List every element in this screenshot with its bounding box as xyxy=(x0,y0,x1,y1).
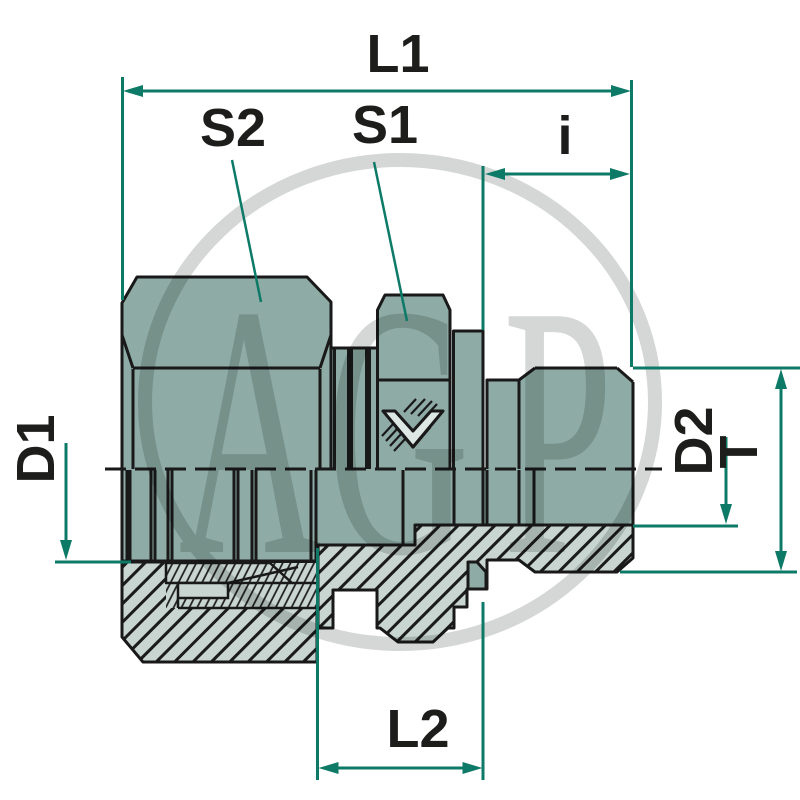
label-s1: S1 xyxy=(335,98,435,152)
label-l2: L2 xyxy=(368,702,468,756)
watermark-letter-g: G xyxy=(327,231,470,630)
dim-d1 xyxy=(55,443,131,562)
watermark-letter-p: P xyxy=(503,231,613,630)
label-s2: S2 xyxy=(183,101,283,155)
label-l1: L1 xyxy=(348,27,448,81)
watermark-letter-a: A xyxy=(179,231,322,630)
watermark: A G P xyxy=(145,160,655,644)
label-t: T xyxy=(712,402,766,502)
fitting-dimension-diagram: A G P xyxy=(0,0,800,800)
label-i: i xyxy=(535,109,595,163)
label-d1: D1 xyxy=(9,399,63,499)
